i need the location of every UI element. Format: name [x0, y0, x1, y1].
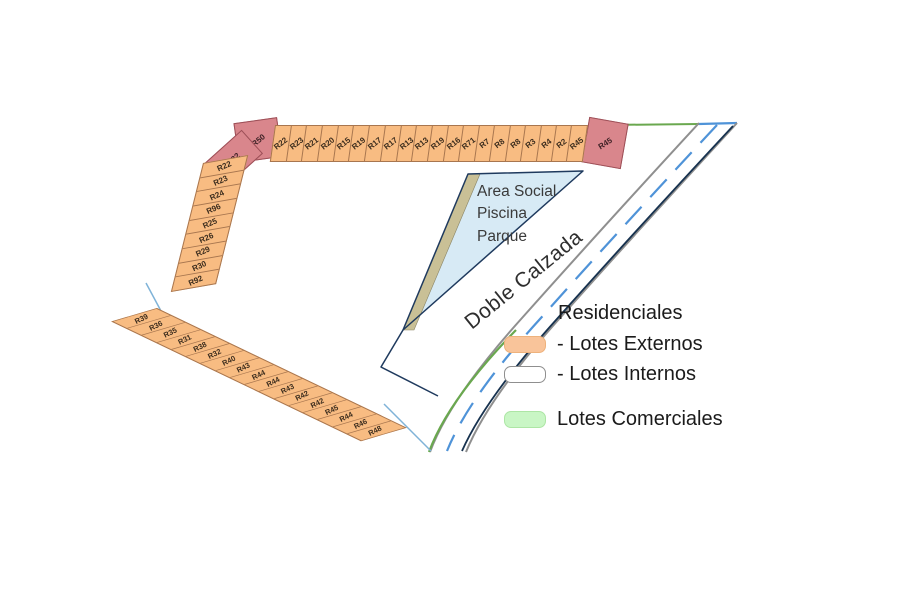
lot-label: R45: [596, 135, 613, 150]
legend-swatch: [504, 411, 546, 428]
area-social-line2: Piscina: [477, 203, 556, 225]
lot-label: R17: [382, 135, 399, 151]
lot-label: R23: [212, 174, 229, 188]
legend-items: - Lotes Externos - Lotes Internos Lotes …: [504, 333, 723, 431]
lot-label: R30: [190, 259, 207, 273]
lot-label: R45: [568, 135, 585, 151]
lot-label: R8: [493, 137, 507, 150]
legend-item-label: Lotes Comerciales: [557, 408, 723, 431]
lot-label: R8: [509, 137, 523, 150]
area-social-line3: Parque: [477, 226, 556, 248]
lot-label: R26: [197, 231, 214, 245]
lot-label: R3: [524, 137, 538, 150]
legend-item-label: - Lotes Externos: [557, 333, 703, 356]
road-commercial-green-line: [429, 330, 516, 452]
area-social-label: Area Social Piscina Parque: [477, 181, 556, 248]
internal-lot-boundary: [381, 330, 438, 396]
reserved-lot-r45: R45: [581, 117, 628, 169]
lot-label: R2: [555, 137, 569, 150]
map-linework: [0, 0, 900, 600]
legend-swatch: [504, 366, 546, 383]
area-social-line1: Area Social: [477, 181, 556, 203]
lot-label: R92: [187, 273, 204, 287]
legend-item-label: - Lotes Internos: [557, 363, 696, 386]
site-plan-canvas: R50 R22 R45 R22 R23 R21 R20 R15: [0, 0, 900, 600]
lot-label: R29: [194, 245, 211, 259]
lot-label: R7: [478, 137, 492, 150]
lot-label: R25: [201, 216, 218, 230]
lot-label: R17: [366, 135, 383, 151]
lot-label: R4: [539, 137, 553, 150]
street-edge-line-left: [146, 283, 161, 311]
legend-swatch: [504, 336, 546, 353]
legend-row: Lotes Comerciales: [504, 408, 723, 431]
lot-label: R22: [272, 135, 289, 151]
legend-row: - Lotes Externos: [504, 333, 723, 356]
legend: Residenciales - Lotes Externos - Lotes I…: [504, 302, 723, 438]
lot-label: R20: [319, 135, 336, 151]
legend-title: Residenciales: [558, 302, 723, 325]
lot-label: R96: [205, 202, 222, 216]
lot-label: R19: [429, 135, 446, 151]
lot-label: R22: [215, 160, 232, 174]
lot-label: R21: [304, 135, 321, 151]
top-boundary-blue-line: [699, 123, 737, 124]
lot-label: R13: [413, 135, 430, 151]
legend-row: - Lotes Internos: [504, 363, 723, 386]
lot-label: R24: [208, 188, 225, 202]
top-lot-strip: R22 R23 R21 R20 R15 R19 R17: [270, 125, 588, 162]
lot-label: R71: [460, 135, 477, 151]
